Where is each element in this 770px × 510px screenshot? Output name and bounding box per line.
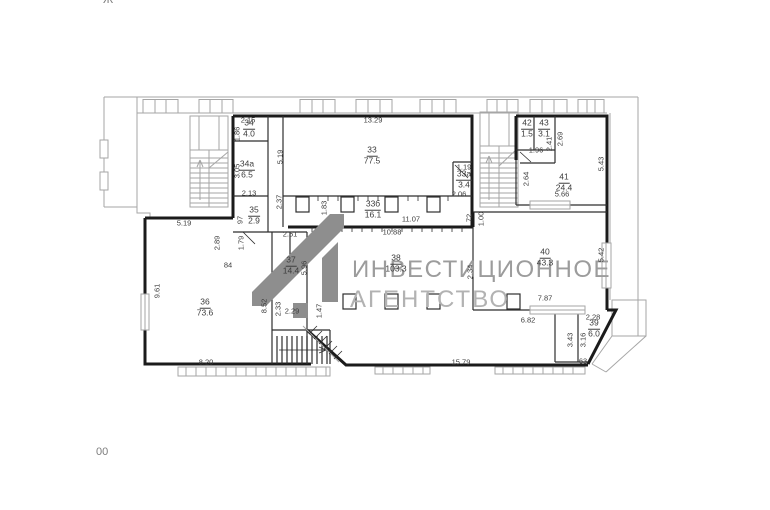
dimension-label: 2.41 (545, 137, 553, 152)
room-label-37: 3714.4 (283, 256, 300, 277)
dimension-label: 10.88 (383, 228, 402, 236)
room-area: 103.3 (385, 265, 406, 275)
room-area: 73.6 (197, 309, 214, 319)
dimension-label: 6.82 (521, 316, 536, 324)
room-area: 6.0 (588, 330, 600, 340)
dimension-label: 15.79 (452, 358, 471, 366)
dimension-label: 9.61 (153, 284, 161, 299)
room-area: 43.3 (537, 259, 554, 269)
dimension-label: 3.16 (579, 333, 587, 348)
dimension-label: 5.19 (177, 219, 192, 227)
room-label-34а: 34а6.5 (239, 160, 255, 181)
dimension-label: 1.83 (320, 201, 328, 216)
room-label-35: 352.9 (248, 206, 260, 227)
room-area: 2.9 (248, 217, 260, 227)
dimension-label: 1.19 (457, 163, 472, 171)
plan-labels-layer: 344.034а6.5352.93377.533а3.433б16.13673.… (0, 0, 770, 510)
room-label-42: 421.5 (521, 119, 533, 140)
room-area: 1.5 (521, 130, 533, 140)
dimension-label: 13.29 (364, 116, 383, 124)
room-label-33а: 33а3.4 (456, 170, 472, 191)
dimension-label: 1.86 (233, 127, 241, 142)
dimension-label: 2.34 (466, 265, 474, 280)
dimension-label: 2.69 (556, 132, 564, 147)
room-label-33б: 33б16.1 (365, 200, 382, 221)
dimension-label: 2.29 (285, 307, 300, 315)
dimension-label: 2.15 (241, 116, 256, 124)
room-label-36: 3673.6 (197, 298, 214, 319)
dimension-label: 3.05 (233, 164, 241, 179)
dimension-label: 2.28 (586, 313, 601, 321)
dimension-label: 1.00 (477, 212, 485, 227)
dimension-label: 2.06 (452, 190, 467, 198)
dimension-label: 5.43 (597, 157, 605, 172)
dimension-label: 5.96 (300, 261, 308, 276)
dimension-label: 3.43 (566, 333, 574, 348)
room-area: 4.0 (243, 130, 255, 140)
dimension-label: 97 (236, 216, 244, 224)
dimension-label: 5.42 (597, 248, 605, 263)
dimension-label: 2.64 (522, 172, 530, 187)
dimension-label: 8.20 (199, 358, 214, 366)
room-label-38: 38103.3 (385, 254, 406, 275)
room-area: 14.4 (283, 267, 300, 277)
dimension-label: 11.07 (402, 215, 420, 223)
dimension-label: 63 (579, 357, 587, 365)
dimension-label: 2.89 (213, 236, 221, 251)
room-label-40: 4043.3 (537, 248, 554, 269)
dimension-label: 1.47 (315, 304, 323, 319)
dimension-label: 1.96 (529, 146, 544, 154)
room-area: 77.5 (364, 157, 381, 167)
dimension-label: 5.66 (555, 190, 570, 198)
floor-plan-canvas: ИНВЕСТИЦИОННОЕ АГЕНТСТВО Ж 00 344.034а6.… (0, 0, 770, 510)
dimension-label: 8.52 (260, 299, 268, 314)
dimension-label: 84 (224, 261, 232, 269)
dimension-label: 2.13 (242, 189, 257, 197)
dimension-label: 2.33 (274, 302, 282, 317)
dimension-label: 2.51 (283, 230, 298, 238)
dimension-label: 7.87 (538, 294, 553, 302)
dimension-label: 5.19 (276, 150, 284, 165)
room-area: 6.5 (241, 171, 253, 181)
room-label-33: 3377.5 (364, 146, 381, 167)
room-area: 16.1 (365, 211, 382, 221)
dimension-label: 1.79 (237, 236, 245, 251)
room-label-39: 396.0 (588, 319, 600, 340)
dimension-label: 72 (465, 214, 473, 222)
dimension-label: 2.37 (275, 195, 283, 210)
